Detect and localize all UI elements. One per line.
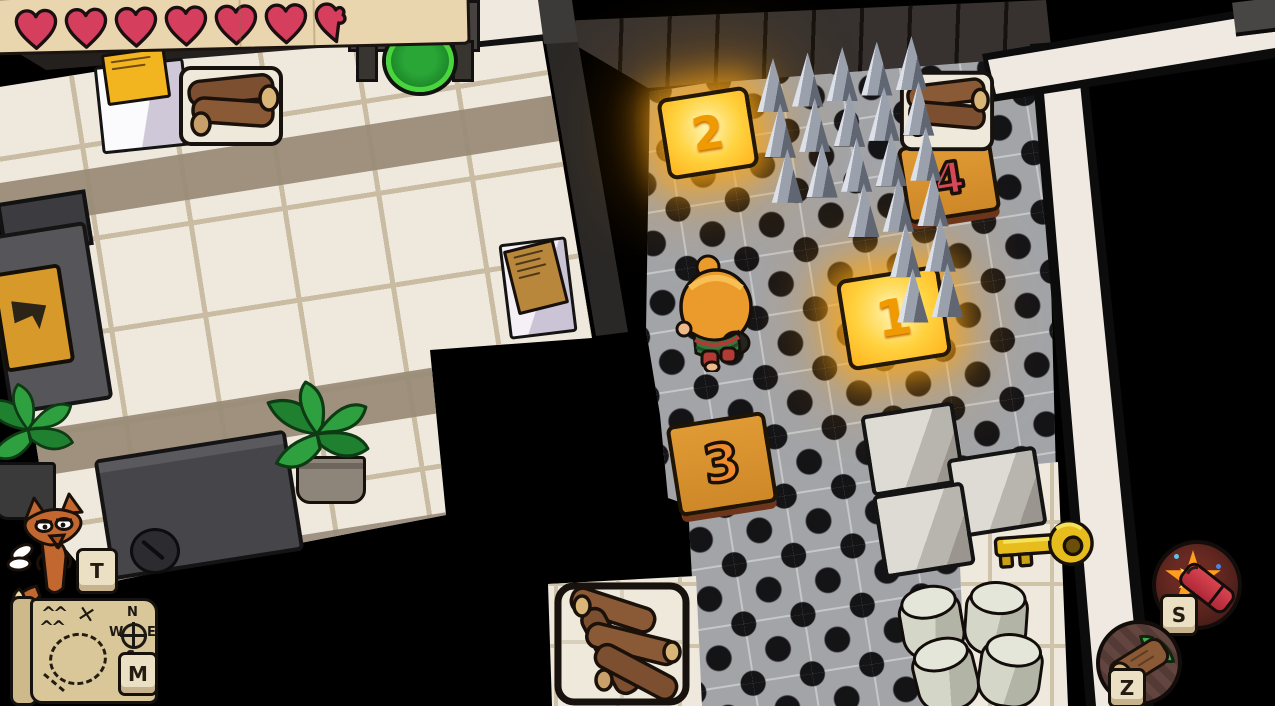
player-character xyxy=(672,250,764,372)
pressure-plate-1: 1 xyxy=(835,264,952,371)
game-viewport[interactable]: 2 1 3 4 xyxy=(0,0,1275,706)
wall-corner-block xyxy=(1232,0,1275,37)
stone-cube xyxy=(872,481,976,578)
ability-log-button[interactable]: Z xyxy=(1096,620,1182,706)
pressure-plate-2: 2 xyxy=(656,85,760,180)
sign-glyph-icon xyxy=(11,296,50,333)
heart-full xyxy=(13,8,60,51)
plant-left xyxy=(0,382,78,474)
log-key-prompt: Z xyxy=(1108,668,1146,706)
hearts-row xyxy=(0,0,468,51)
plate-number: 2 xyxy=(688,104,728,162)
ability-dynamite-button[interactable]: S xyxy=(1152,540,1242,630)
heart-full xyxy=(163,5,210,48)
gate-leg xyxy=(356,44,378,82)
golden-key xyxy=(988,508,1098,581)
map-key-prompt: M xyxy=(118,652,158,696)
can xyxy=(973,634,1046,706)
compass-west: W xyxy=(109,625,123,640)
heart-full xyxy=(263,2,310,45)
map-x-marker-icon: ✕ xyxy=(75,601,98,629)
plate-number: 3 xyxy=(699,432,744,497)
map-scroll[interactable]: ^^ ^^ ✕ N W E S M xyxy=(4,590,164,706)
heart-partial xyxy=(313,1,360,44)
log-key-label: Z xyxy=(1120,676,1135,700)
heart-full xyxy=(113,6,160,49)
screw-icon xyxy=(130,528,180,574)
heart-full xyxy=(213,3,260,46)
compass-east: E xyxy=(147,625,156,640)
log-bench xyxy=(176,58,288,150)
pressure-plate-3: 3 xyxy=(665,411,778,518)
companion-key-label: T xyxy=(90,559,104,583)
plant-center xyxy=(258,380,376,484)
compass-north: N xyxy=(127,605,138,620)
heart-full xyxy=(63,7,110,50)
map-mountains-icon: ^^ xyxy=(39,617,63,638)
map-key-label: M xyxy=(128,662,148,686)
dynamite-key-label: S xyxy=(1172,603,1186,627)
companion-key-prompt: T xyxy=(76,548,118,594)
sticky-note xyxy=(101,46,172,106)
gate-leg xyxy=(452,40,474,82)
log-pile-bottom xyxy=(552,580,692,706)
